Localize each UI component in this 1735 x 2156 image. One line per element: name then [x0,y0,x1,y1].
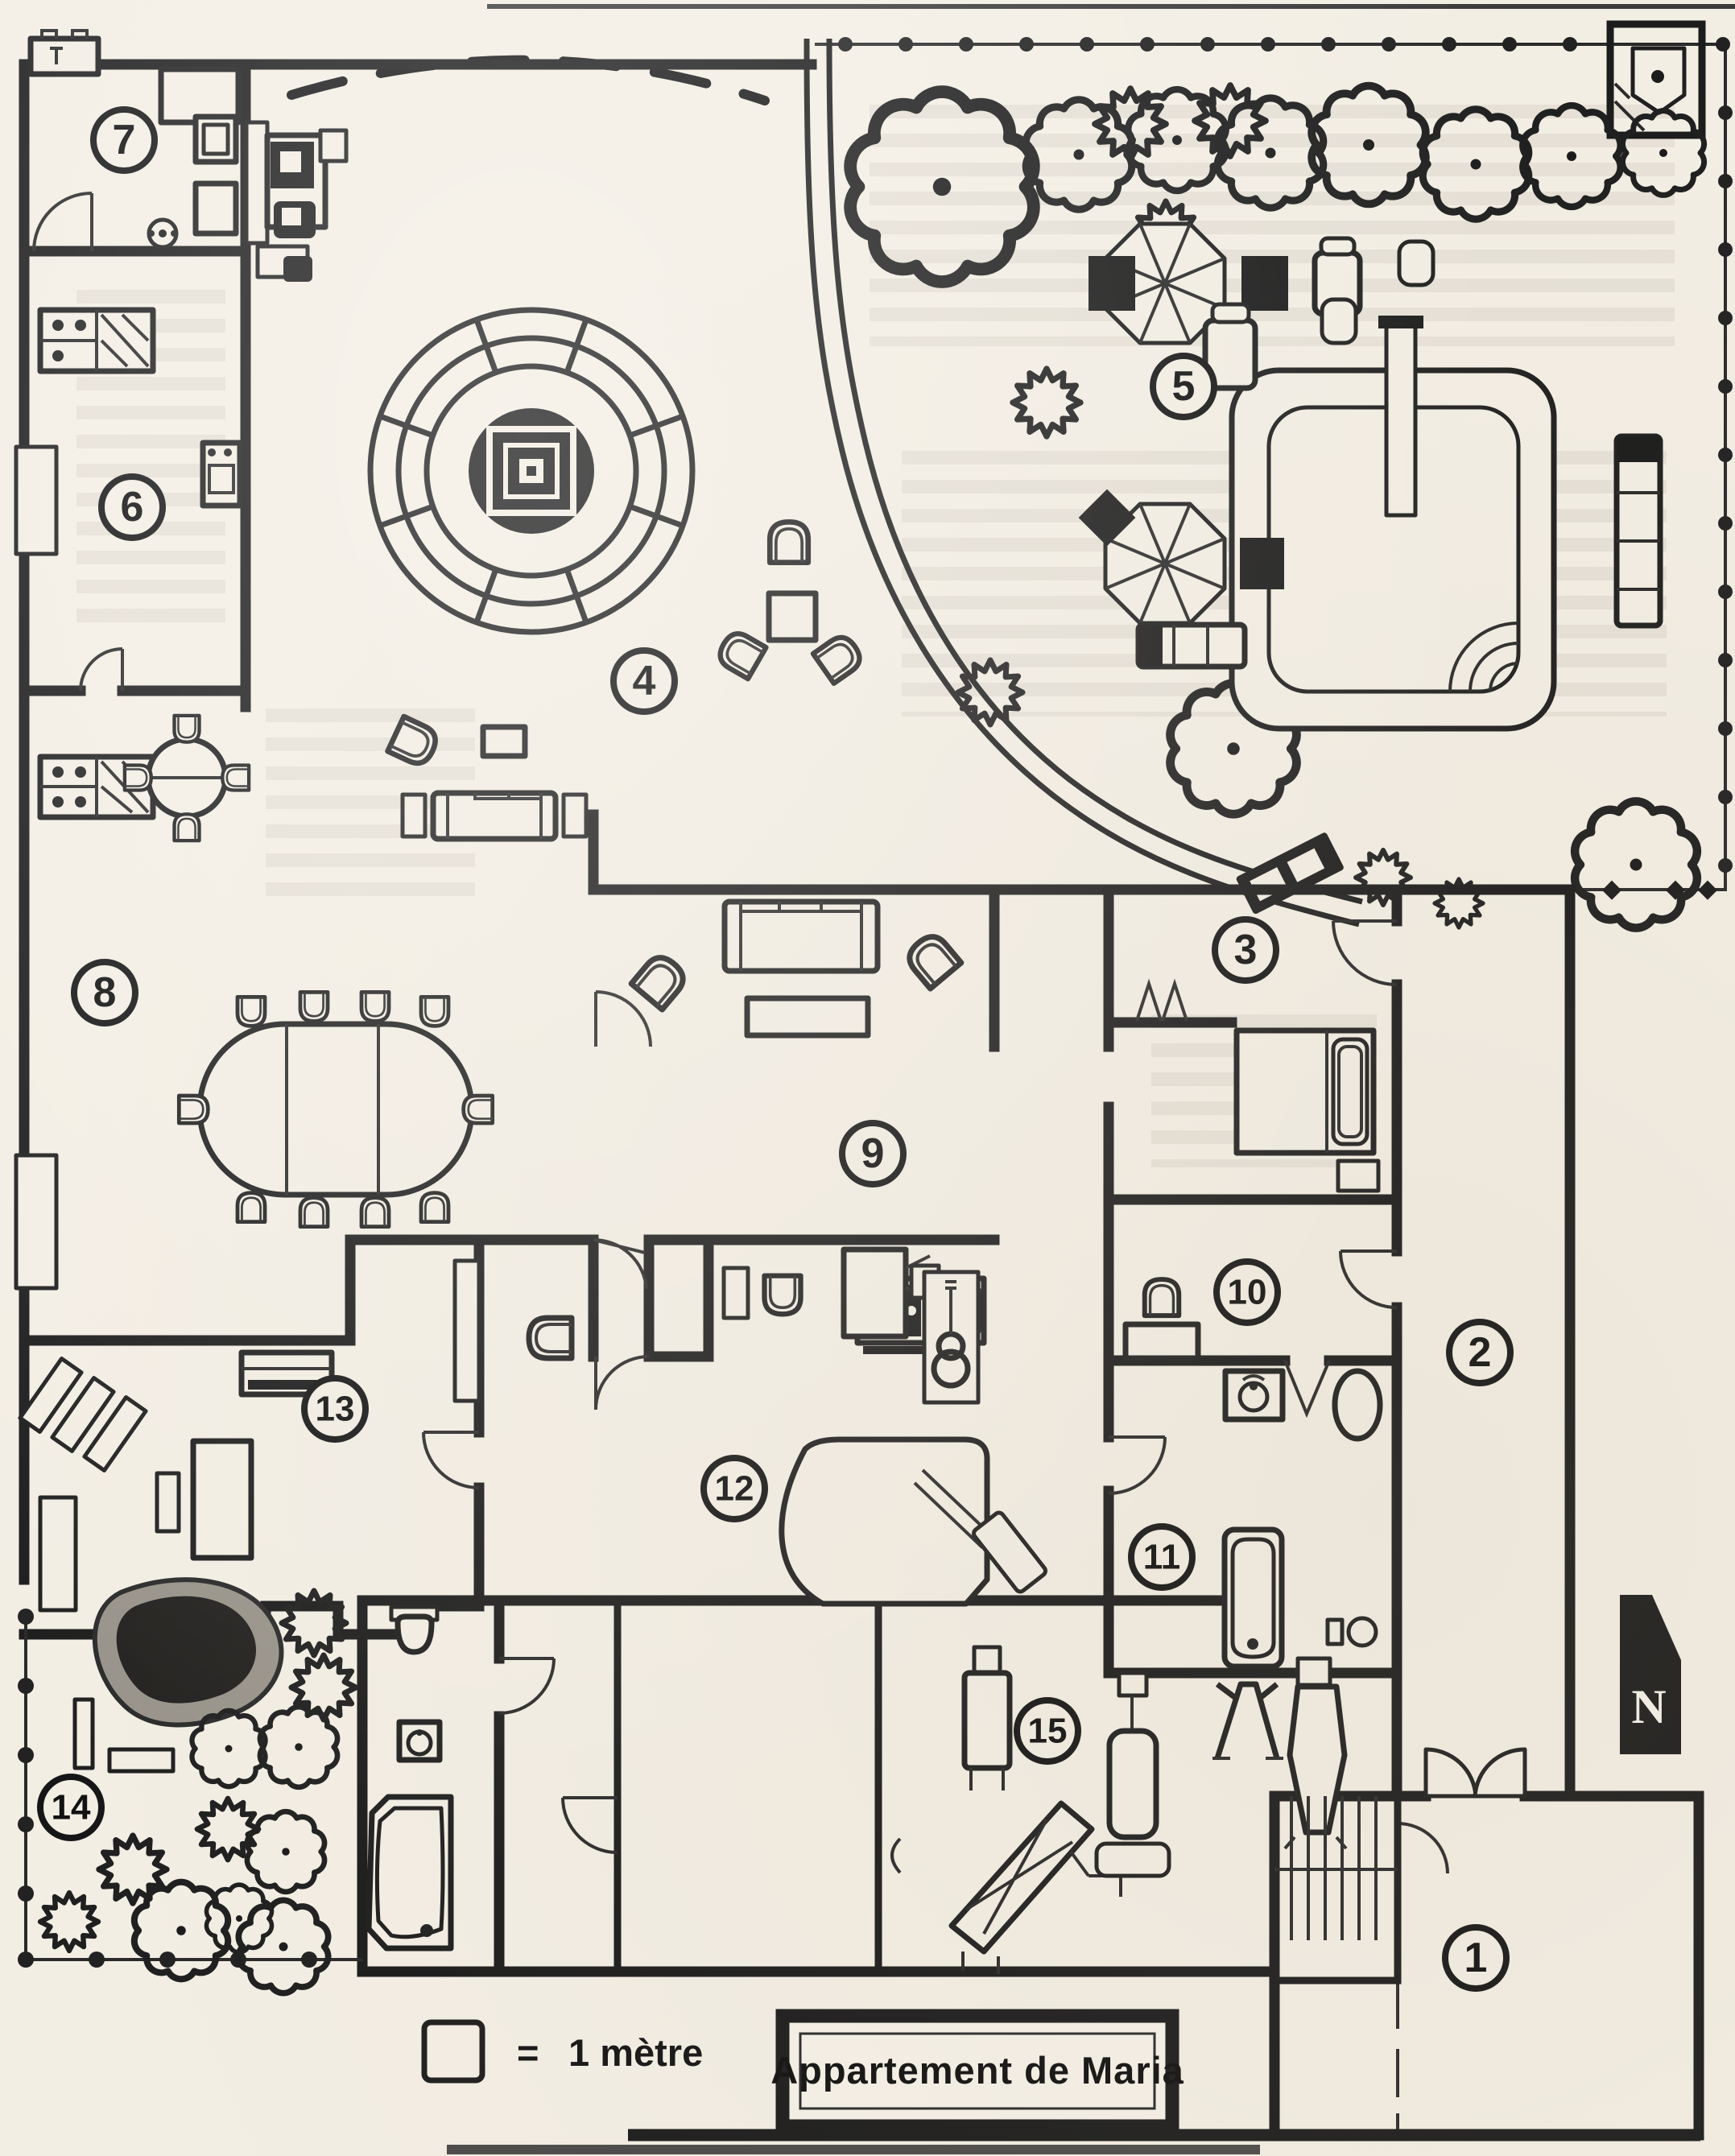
sofa [725,902,878,971]
coffee-table [747,998,868,1035]
washing-machine [203,443,240,506]
legend-scale-square [424,2022,482,2080]
bidet-symbol [1328,1618,1376,1646]
room-label-2: 2 [1449,1322,1510,1383]
room-label-14: 14 [40,1777,101,1838]
corner-bathtub-symbol [369,1797,451,1948]
double-door-leaf [1475,1749,1525,1796]
room12-furniture [455,1249,1047,1604]
shelf [455,1261,479,1401]
north-arrow-icon: N [1620,1595,1681,1754]
room-label-15: 15 [1017,1700,1078,1762]
room-label-3: 3 [1215,919,1276,981]
svg-text:4: 4 [633,658,656,704]
washbasin-symbol [1145,1279,1179,1315]
room-label-1: 1 [1445,1927,1506,1989]
garden-bench [75,1700,93,1768]
stove-counter [40,310,153,371]
legend: = 1 mètre [424,2022,703,2080]
sun-lounger [1138,625,1245,667]
legend-scale-text: 1 mètre [568,2031,703,2074]
bathroom-block-fixtures [369,1607,451,1948]
scanned-floor-plan-page: N 1 2 3 4 5 6 7 8 9 10 11 12 13 14 15 = … [0,0,1735,2156]
side-table [724,1268,748,1318]
room-label-10: 10 [1217,1262,1278,1323]
svg-text:9: 9 [861,1130,885,1177]
bathtub-symbol [1225,1530,1282,1667]
chair [765,1276,801,1315]
svg-text:13: 13 [316,1390,355,1429]
sun-lounger [1617,436,1660,626]
double-door-leaf [1426,1749,1476,1796]
room-label-9: 9 [842,1123,903,1184]
swimming-pool [1232,316,1554,729]
room-label-7: 7 [93,109,155,171]
hall4-fountain [370,310,692,632]
vacuum-cleaner [1097,1673,1169,1876]
sink-symbol [1225,1371,1283,1419]
closet-fold-door [1137,984,1187,1021]
svg-text:1: 1 [1464,1935,1488,1981]
room6-furniture [40,310,249,841]
armchair [529,1318,572,1358]
drying-trousers [1212,1684,1283,1758]
legend-equals: = [517,2031,539,2074]
toilet-symbol [1335,1371,1380,1439]
dining-table [179,992,492,1226]
guitar-symbol [924,1272,978,1402]
svg-text:2: 2 [1469,1329,1492,1376]
north-label: N [1631,1680,1666,1733]
svg-text:5: 5 [1172,363,1196,410]
title-box: Appartement de Maria [770,2016,1184,2126]
slide [892,1803,1121,1974]
svg-text:7: 7 [113,117,136,163]
room-label-12: 12 [704,1458,765,1519]
room-label-8: 8 [74,962,135,1023]
nightstand [1338,1161,1378,1191]
svg-text:10: 10 [1228,1273,1267,1312]
grand-piano [782,1439,1047,1604]
plan-title: Appartement de Maria [770,2049,1184,2092]
svg-text:6: 6 [121,484,144,531]
svg-text:12: 12 [715,1469,754,1509]
hall4-sofa [433,793,556,839]
high-chair [965,1647,1010,1790]
sink-symbol [399,1722,440,1760]
room11-fixtures [1225,1371,1380,1667]
room3-furniture [1237,1031,1378,1191]
diving-board [1386,320,1415,515]
staircase [1274,1796,1398,1980]
svg-text:8: 8 [93,969,117,1016]
floor-plan-drawing: N 1 2 3 4 5 6 7 8 9 10 11 12 13 14 15 = … [0,0,1735,2156]
room-label-11: 11 [1131,1526,1192,1588]
bed [1237,1031,1374,1153]
computer-desk [246,122,346,282]
svg-text:3: 3 [1234,927,1258,973]
pond-water [117,1596,256,1704]
toilet-symbol [391,1607,437,1652]
garden-bench [109,1749,173,1771]
room10-fixtures [1126,1279,1198,1358]
desk-chair [157,1473,179,1531]
cabinet [40,1497,76,1610]
desk [193,1441,251,1558]
armchair [903,930,960,989]
svg-text:11: 11 [1143,1538,1181,1577]
room-label-5: 5 [1153,356,1214,417]
path-bench [1235,832,1345,915]
armchair [631,951,689,1010]
room-label-13: 13 [304,1378,366,1439]
round-kitchen-table [125,716,249,841]
svg-text:14: 14 [52,1788,91,1828]
room13-furniture [20,1353,332,1610]
svg-text:15: 15 [1028,1712,1068,1751]
room-label-4: 4 [613,651,675,712]
room-label-6: 6 [101,477,163,538]
ironing-board [1285,1658,1346,1848]
